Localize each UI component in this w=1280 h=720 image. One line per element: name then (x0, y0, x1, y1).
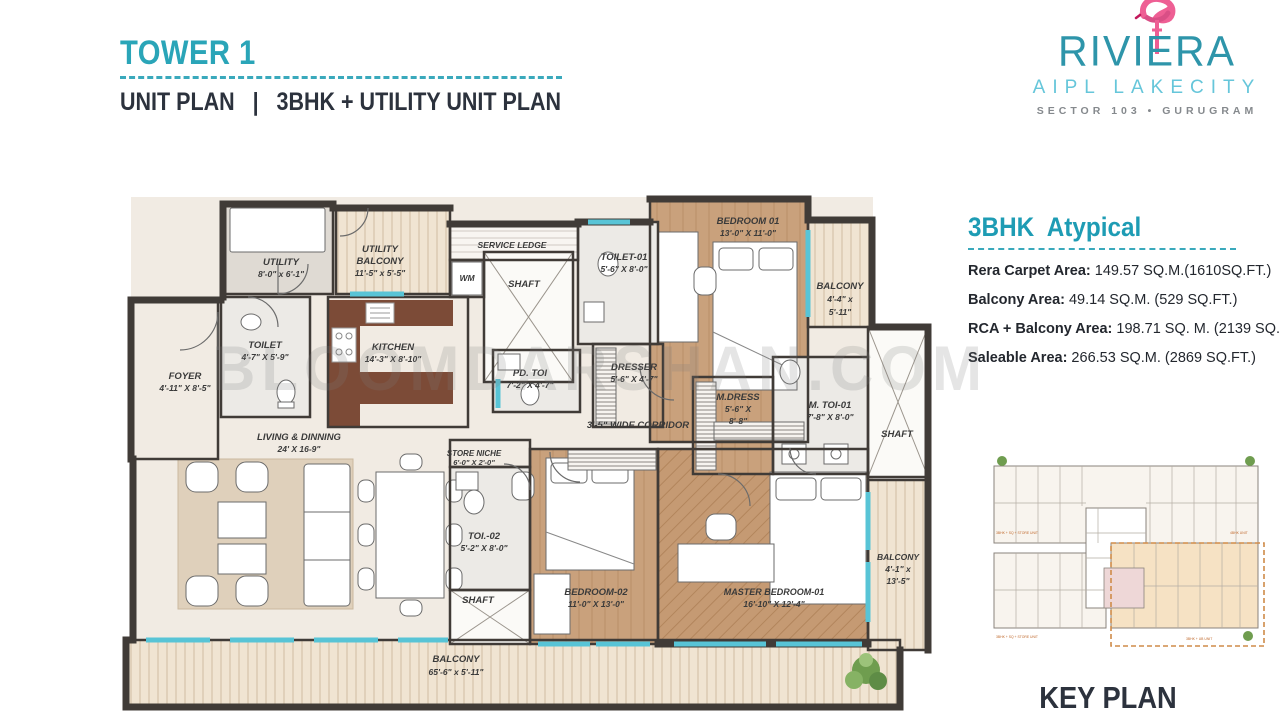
svg-text:11'-0" X 13'-0": 11'-0" X 13'-0" (568, 599, 625, 609)
room-foyer: FOYER (169, 371, 202, 382)
room-balcony-bottom: BALCONY (433, 654, 482, 665)
room-shaft-top: SHAFT (508, 279, 541, 290)
balcony-area: Balcony Area: 49.14 SQ.M. (529 SQ.FT.) (968, 292, 1258, 308)
desk-chair (706, 514, 736, 540)
unit-info-divider (968, 248, 1236, 250)
room-shaft-right: SHAFT (881, 429, 914, 440)
rera-label: Rera Carpet Area: (968, 263, 1091, 279)
rca-label: RCA + Balcony Area: (968, 321, 1112, 337)
room-corridor: 3'-5" WIDE CORRIDOR (587, 420, 689, 431)
pillow (719, 248, 753, 270)
svg-text:7'-2" X 4'-7": 7'-2" X 4'-7" (506, 380, 554, 390)
unit-type-title: 3BHK Atypical (968, 212, 1229, 243)
rca-balcony-area: RCA + Balcony Area: 198.71 SQ. M. (2139 … (968, 321, 1258, 337)
pillow (776, 478, 816, 500)
balcony-value: 49.14 SQ.M. (529 SQ.FT.) (1065, 292, 1237, 308)
svg-text:8'-8": 8'-8" (729, 416, 748, 426)
svg-text:4'-1" x: 4'-1" x (884, 564, 912, 574)
room-kitchen: KITCHEN (372, 342, 415, 353)
desk-chair (694, 267, 716, 295)
chair (400, 454, 422, 470)
wardrobe (568, 450, 656, 470)
key-plan: 3BHK + SQ + STORE UNIT 4BHK UNIT 3BHK + … (986, 448, 1278, 666)
room-utility-balcony: UTILITY (362, 244, 400, 255)
utility-bed (230, 208, 325, 252)
svg-text:8'-0" x 6'-1": 8'-0" x 6'-1" (258, 269, 305, 279)
svg-text:4'-7" X 5'-9": 4'-7" X 5'-9" (240, 352, 289, 362)
chair (446, 568, 462, 590)
logo-location: SECTOR 103 • GURUGRAM (1022, 105, 1272, 117)
coffee-table (218, 544, 266, 574)
svg-text:7'-8" X 8'-0": 7'-8" X 8'-0" (806, 412, 854, 422)
svg-text:65'-6" x 5'-11": 65'-6" x 5'-11" (429, 667, 485, 677)
room-store-niche: STORE NICHE (447, 449, 502, 458)
chair (400, 600, 422, 616)
keyplan-unit-label: 3BHK + SQ + STORE UNIT (996, 531, 1038, 535)
svg-text:5'-11": 5'-11" (829, 307, 852, 317)
logo-tagline: AIPL LAKECITY (1022, 77, 1272, 99)
keyplan-unit-label: 3BHK + SQ + STORE UNIT (996, 635, 1038, 639)
brand-logo: RIVIERA AIPL LAKECITY SECTOR 103 • GURUG… (1022, 0, 1272, 117)
balcony-label: Balcony Area: (968, 292, 1065, 308)
bedroom01-desk (658, 232, 698, 342)
room-toilet-01: TOILET-01 (601, 252, 648, 263)
room-toilet: TOILET (248, 340, 283, 351)
logo-name: RIVIERA (1022, 27, 1272, 76)
armchair (236, 576, 268, 606)
room-dresser: DRESSER (611, 362, 657, 373)
svg-text:16'-10" X 12'-4": 16'-10" X 12'-4" (743, 599, 805, 609)
rca-value: 198.71 SQ. M. (2139 SQ.FT.) (1112, 321, 1280, 337)
room-utility: UTILITY (263, 257, 301, 268)
armchair (236, 462, 268, 492)
keyplan-unit-label: 3BHK + UB UNIT (1186, 637, 1212, 641)
room-m-dress: M.DRESS (716, 392, 760, 403)
svg-text:BALCONY: BALCONY (357, 256, 406, 267)
room-toi-02: TOI.-02 (468, 531, 501, 542)
svg-text:11'-5" x 5'-5": 11'-5" x 5'-5" (355, 268, 406, 278)
room-balcony-right: BALCONY (877, 552, 920, 562)
bedroom02-desk (534, 574, 570, 634)
armchair (186, 576, 218, 606)
page-subtitle: UNIT PLAN | 3BHK + UTILITY UNIT PLAN (120, 88, 561, 117)
keyplan-unit-label: 4BHK UNIT (1230, 531, 1248, 535)
saleable-label: Saleable Area: (968, 350, 1067, 366)
svg-text:13'-5": 13'-5" (886, 576, 910, 586)
brochure-page: TOWER 1 UNIT PLAN | 3BHK + UTILITY UNIT … (0, 0, 1280, 720)
sofa (304, 464, 350, 606)
balcony-bottom-floor (126, 640, 900, 707)
pillow (759, 248, 793, 270)
unit-info-panel: 3BHK Atypical Rera Carpet Area: 149.57 S… (968, 212, 1258, 366)
keyplan-stair-core (1104, 568, 1144, 608)
rera-value: 149.57 SQ.M.(1610SQ.FT.) (1091, 263, 1272, 279)
svg-text:14'-3" X 8'-10": 14'-3" X 8'-10" (365, 354, 422, 364)
master-desk (678, 544, 774, 582)
keyplan-title: KEY PLAN (1002, 680, 1213, 716)
svg-text:5'-6" X 8'-0": 5'-6" X 8'-0" (600, 264, 648, 274)
svg-text:6'-0" X 2'-0": 6'-0" X 2'-0" (453, 458, 495, 467)
room-shaft-bottom: SHAFT (462, 595, 495, 606)
wardrobe (696, 382, 716, 470)
svg-text:4'-11" X 8'-5": 4'-11" X 8'-5" (158, 383, 211, 393)
toilet01-floor (578, 222, 658, 344)
wardrobe (596, 348, 616, 424)
room-master-bedroom: MASTER BEDROOM-01 (724, 587, 825, 597)
room-bedroom-02: BEDROOM-02 (564, 587, 628, 598)
room-wm: WM (459, 273, 475, 283)
coffee-table (218, 502, 266, 538)
pillow (821, 478, 861, 500)
svg-text:24' X 16-9": 24' X 16-9" (277, 444, 322, 454)
room-m-toi: M. TOI-01 (809, 400, 852, 411)
chair (358, 568, 374, 590)
title-divider (120, 76, 562, 79)
armchair (186, 462, 218, 492)
floor-plan: FOYER 4'-11" X 8'-5" UTILITY 8'-0" x 6'-… (118, 172, 933, 720)
room-pd-toi: PD. TOI (513, 368, 547, 379)
dining-table (376, 472, 444, 598)
svg-text:13'-0" X 11'-0": 13'-0" X 11'-0" (720, 228, 777, 238)
room-living: LIVING & DINNING (257, 432, 342, 443)
svg-text:4'-4" x: 4'-4" x (826, 294, 854, 304)
rera-carpet-area: Rera Carpet Area: 149.57 SQ.M.(1610SQ.FT… (968, 263, 1258, 279)
svg-text:5'-2" X 8'-0": 5'-2" X 8'-0" (460, 543, 508, 553)
page-title: TOWER 1 (120, 34, 256, 73)
saleable-area: Saleable Area: 266.53 SQ.M. (2869 SQ.FT.… (968, 350, 1258, 366)
svg-text:5'-6" X 4'-7": 5'-6" X 4'-7" (610, 374, 658, 384)
room-balcony-b1: BALCONY (817, 281, 866, 292)
svg-text:5'-6" X: 5'-6" X (725, 404, 753, 414)
room-bedroom-01: BEDROOM 01 (717, 216, 780, 227)
chair (358, 524, 374, 546)
chair (358, 480, 374, 502)
room-service-ledge: SERVICE LEDGE (478, 240, 547, 250)
saleable-value: 266.53 SQ.M. (2869 SQ.FT.) (1067, 350, 1256, 366)
wardrobe (714, 422, 804, 440)
